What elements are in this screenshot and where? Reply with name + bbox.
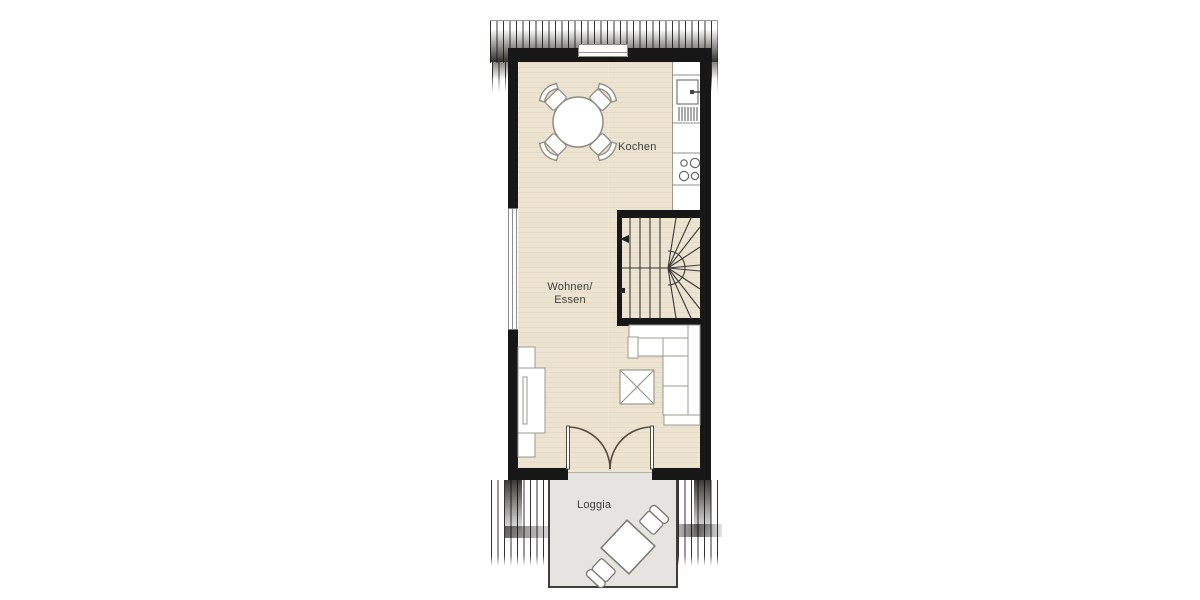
french-double-door-icon bbox=[567, 426, 654, 469]
stair-start-marker bbox=[620, 288, 625, 293]
sideboard-icon bbox=[518, 347, 545, 457]
living-label-line2: Essen bbox=[530, 294, 610, 307]
kitchen-sink-icon bbox=[677, 80, 700, 104]
living-dining-label: Wohnen/ Essen bbox=[530, 281, 610, 307]
dish-drainer-icon bbox=[679, 107, 697, 121]
staircase-icon bbox=[622, 218, 700, 318]
living-label-line1: Wohnen/ bbox=[530, 281, 610, 294]
coffee-table-icon bbox=[620, 370, 654, 404]
floor-plan-canvas: Kochen Wohnen/ Essen Loggia bbox=[0, 0, 1200, 600]
stove-burners-icon bbox=[679, 158, 699, 180]
loggia-label: Loggia bbox=[577, 499, 611, 511]
dining-table-icon bbox=[553, 97, 603, 147]
stair-direction-arrow-icon bbox=[620, 235, 629, 243]
kitchen-label: Kochen bbox=[618, 141, 657, 153]
